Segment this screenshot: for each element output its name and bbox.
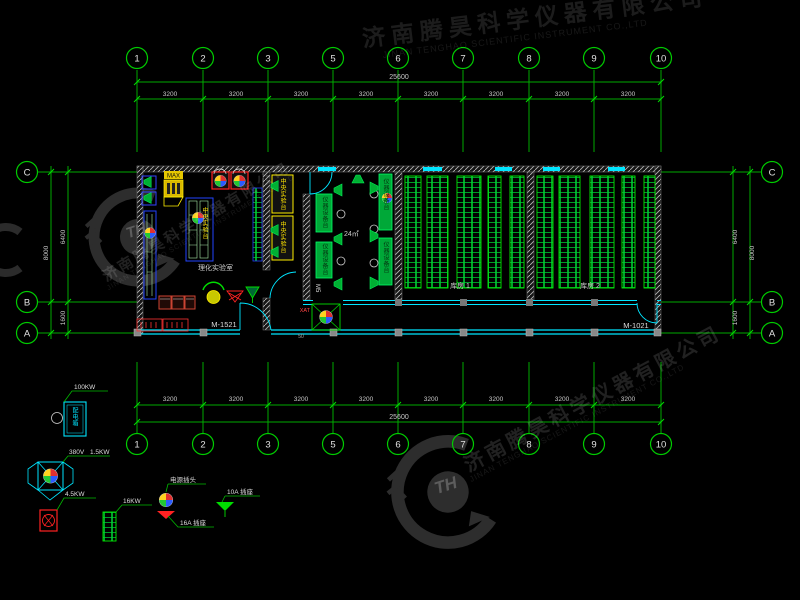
dim-total: 25600 bbox=[389, 414, 409, 421]
bench-label-side: 仪器设备台 bbox=[321, 196, 327, 229]
grid-right: C B A 8000 6400 1600 bbox=[661, 162, 783, 344]
dim-total-v: 8000 bbox=[43, 245, 50, 260]
legend-distribution-box-label: 配电箱 bbox=[71, 407, 77, 427]
door-label-3: M5 bbox=[314, 284, 320, 293]
red-tag-box bbox=[137, 319, 188, 331]
cad-drawing: 1 2 3 5 6 7 8 9 10 25600 3200 3200 3200 … bbox=[0, 0, 800, 600]
axis-label: 3 bbox=[265, 54, 270, 65]
axis-label: 2 bbox=[200, 440, 205, 451]
axis-label: 3 bbox=[265, 440, 270, 451]
axis-label: 2 bbox=[200, 54, 205, 65]
legend-16a-label: 16A 插座 bbox=[180, 518, 207, 527]
legend: 100KW 380V 1.5KW 4.5KW 16KW 电源插头 16A 插座 … bbox=[28, 384, 260, 541]
axis-label: A bbox=[769, 329, 776, 340]
door-label-2: M-1021 bbox=[623, 321, 648, 330]
dim-bay: 3200 bbox=[294, 91, 309, 98]
bench-label-central: 中央实验台 bbox=[279, 221, 285, 254]
socket-10a-icon bbox=[216, 502, 234, 511]
dim-bay: 3200 bbox=[489, 396, 504, 403]
dim-ba: 1600 bbox=[732, 310, 739, 325]
fan-tag: XAT bbox=[300, 308, 311, 314]
chair bbox=[207, 291, 220, 304]
socket-16a-icon bbox=[157, 511, 175, 519]
hood-tag: MAX bbox=[167, 174, 180, 180]
bench-label-side: 仪器设备台 bbox=[382, 241, 388, 274]
legend-10a-label: 10A 插座 bbox=[227, 487, 254, 496]
axis-label: C bbox=[24, 168, 31, 179]
bench-label-side: 仪器设备台 bbox=[382, 178, 388, 211]
dim-bay: 3200 bbox=[163, 91, 178, 98]
dim-bay: 3200 bbox=[621, 91, 636, 98]
dim-bay: 3200 bbox=[489, 91, 504, 98]
cad-canvas: 1 2 3 5 6 7 8 9 10 25600 3200 3200 3200 … bbox=[0, 0, 800, 600]
dim-cb: 6400 bbox=[60, 229, 67, 244]
axis-label: 9 bbox=[591, 440, 596, 451]
dim-total: 25600 bbox=[389, 74, 409, 81]
axis-label: 5 bbox=[330, 54, 335, 65]
axis-label: 5 bbox=[330, 440, 335, 451]
dim-ba: 1600 bbox=[60, 310, 67, 325]
dim-bay: 3200 bbox=[424, 91, 439, 98]
room-label-store2: 库房 2 bbox=[580, 281, 600, 290]
green-cone bbox=[246, 287, 259, 303]
dim-cb: 6400 bbox=[732, 229, 739, 244]
door-label-1: M-1521 bbox=[211, 320, 236, 329]
axis-label: B bbox=[24, 298, 30, 309]
dim-bay: 3200 bbox=[294, 396, 309, 403]
axis-label: B bbox=[769, 298, 775, 309]
axis-label: 1 bbox=[134, 54, 139, 65]
room-storage-2 bbox=[537, 176, 655, 288]
legend-rating-100kw: 100KW bbox=[74, 384, 96, 391]
room-label-area: 24㎡ bbox=[344, 230, 359, 238]
dim-bay: 3200 bbox=[424, 396, 439, 403]
axis-label: 10 bbox=[656, 54, 667, 65]
legend-rack-power: 16KW bbox=[123, 498, 142, 505]
grid-left: C B A 8000 6400 1600 bbox=[17, 162, 138, 344]
grid-top bbox=[134, 70, 664, 152]
dim-bay: 3200 bbox=[359, 396, 374, 403]
room-label-store1: 库房 1 bbox=[450, 281, 470, 290]
legend-fan-power: 1.5KW bbox=[90, 449, 110, 456]
axis-label: 6 bbox=[395, 440, 400, 451]
axis-label: 9 bbox=[591, 54, 596, 65]
axis-label: 10 bbox=[656, 440, 667, 451]
dim-bay: 3200 bbox=[555, 91, 570, 98]
dim-bay: 3200 bbox=[229, 91, 244, 98]
dim-bay: 3200 bbox=[163, 396, 178, 403]
stool bbox=[337, 190, 378, 267]
door-note: 50 bbox=[298, 334, 304, 340]
axis-label: A bbox=[24, 329, 31, 340]
axis-label: 1 bbox=[134, 440, 139, 451]
room-storage-1 bbox=[405, 176, 524, 288]
dim-bay: 3200 bbox=[359, 91, 374, 98]
axis-label: 7 bbox=[460, 54, 465, 65]
legend-red-power: 4.5KW bbox=[65, 491, 85, 498]
room-label-lab: 理化实验室 bbox=[198, 263, 233, 272]
dim-total-v: 8000 bbox=[749, 245, 756, 260]
bench-label-side: 仪器设备台 bbox=[321, 243, 327, 276]
dim-bay: 3200 bbox=[229, 396, 244, 403]
legend-fan-voltage: 380V bbox=[69, 449, 85, 456]
legend-plug-label: 电源插头 bbox=[170, 475, 197, 484]
red-cone bbox=[227, 291, 243, 302]
axis-label: C bbox=[769, 168, 776, 179]
axis-label: 8 bbox=[526, 54, 531, 65]
